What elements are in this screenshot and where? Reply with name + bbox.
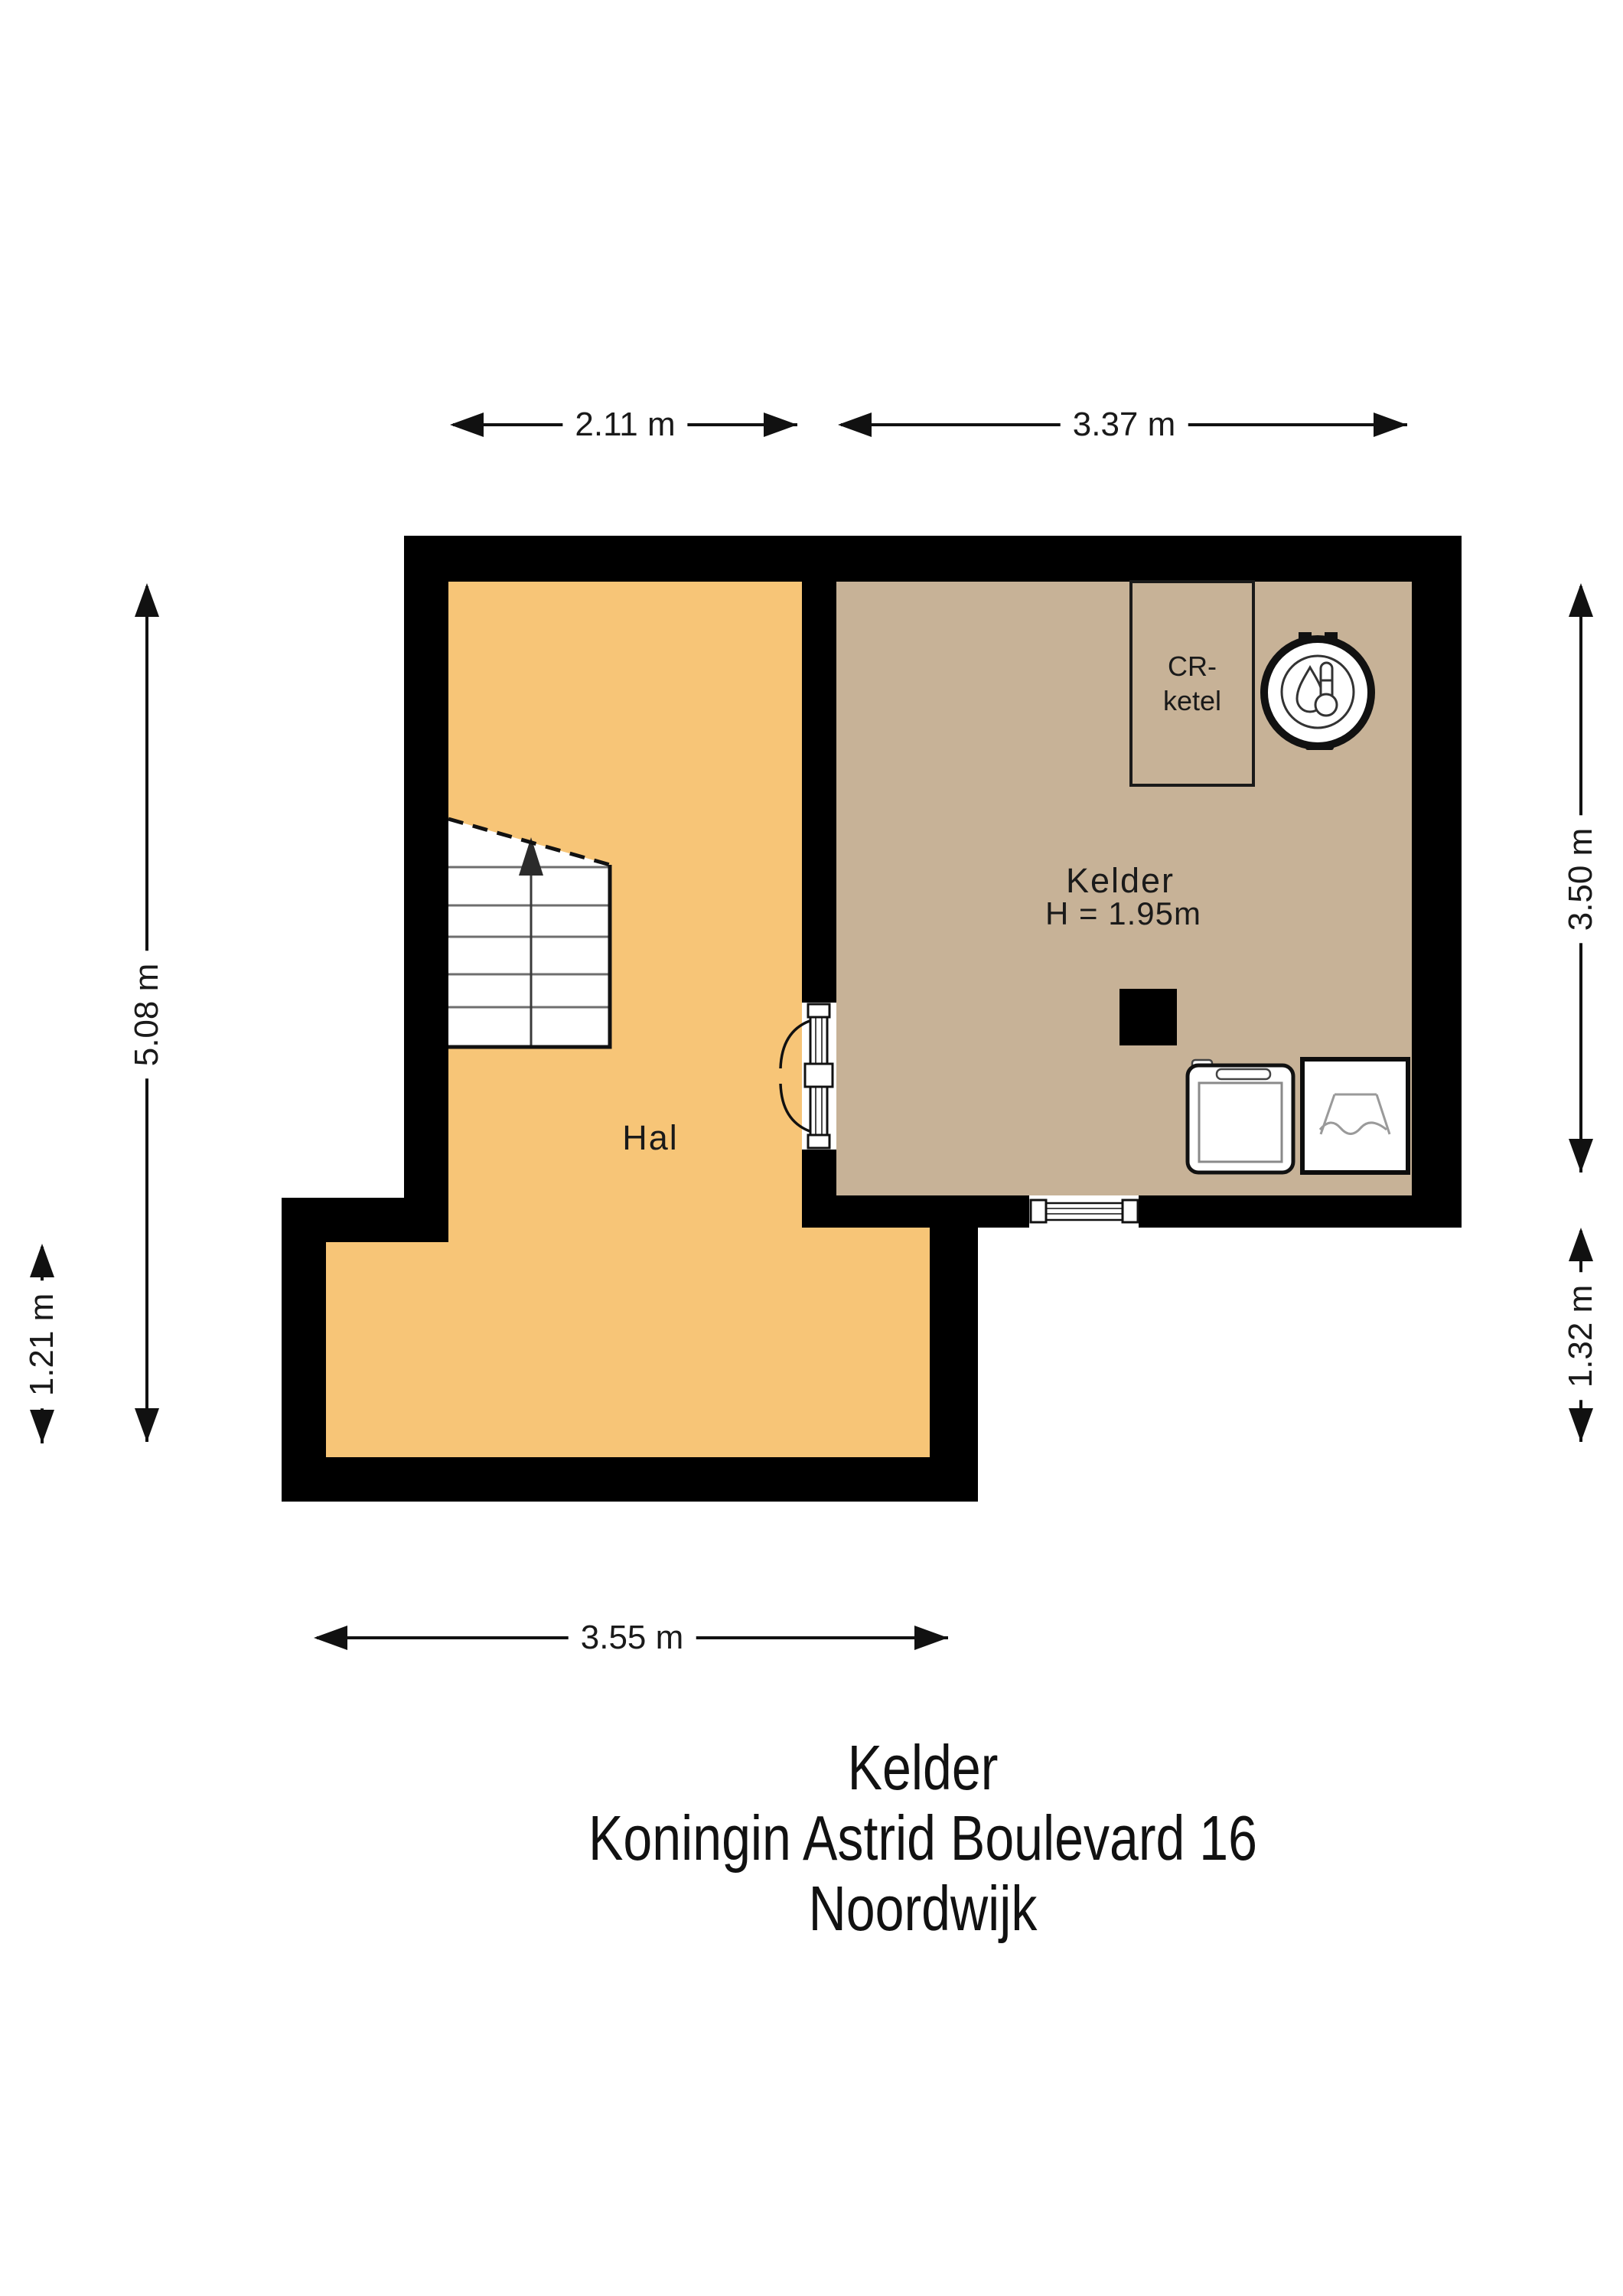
title-city: Noordwijk (588, 1874, 1257, 1944)
dimension-label-bottom: 3.55 m (569, 1619, 696, 1657)
door-jamb-bottom (808, 1135, 829, 1148)
floorplan-page: 2.11 m 3.37 m 5.08 m 1.21 m 3.50 m 1.32 … (0, 0, 1623, 2296)
door-jamb-top (808, 1004, 829, 1017)
column-block (1119, 989, 1177, 1045)
plan-title-block: Kelder Koningin Astrid Boulevard 16 Noor… (588, 1733, 1257, 1944)
room-label-hal: Hal (622, 1118, 679, 1158)
dimension-label-right-lower: 1.32 m (1562, 1273, 1600, 1401)
boiler-icon (1264, 632, 1371, 750)
dimension-label-top-left: 2.11 m (562, 406, 687, 444)
room-label-kelder-height: H = 1.95m (1045, 895, 1201, 932)
window-jamb-left (1031, 1200, 1046, 1222)
dimension-label-left-outer: 5.08 m (128, 951, 166, 1079)
double-swing-door-icon (781, 1004, 833, 1148)
title-floor: Kelder (588, 1733, 1257, 1803)
dimension-label-right-upper: 3.50 m (1562, 816, 1600, 944)
title-address: Koningin Astrid Boulevard 16 (588, 1803, 1257, 1874)
closet-label-cr-ketel: CR- ketel (1163, 649, 1221, 718)
dimension-label-top-right: 3.37 m (1061, 406, 1188, 444)
window-icon (1031, 1200, 1138, 1222)
window-jamb-right (1123, 1200, 1138, 1222)
dimension-label-left-inner: 1.21 m (23, 1281, 61, 1409)
laundry-sink-icon (1302, 1059, 1408, 1172)
washer-drum (1199, 1083, 1282, 1162)
boiler-thermometer-bulb (1315, 694, 1337, 716)
sink-body (1302, 1059, 1408, 1172)
plan-lineart (0, 0, 1623, 2296)
door-center-block (805, 1064, 833, 1087)
washer-control-strip (1217, 1069, 1270, 1079)
window-glazing (1046, 1203, 1123, 1220)
washing-machine-icon (1188, 1060, 1293, 1172)
staircase-up-icon (448, 819, 610, 1047)
